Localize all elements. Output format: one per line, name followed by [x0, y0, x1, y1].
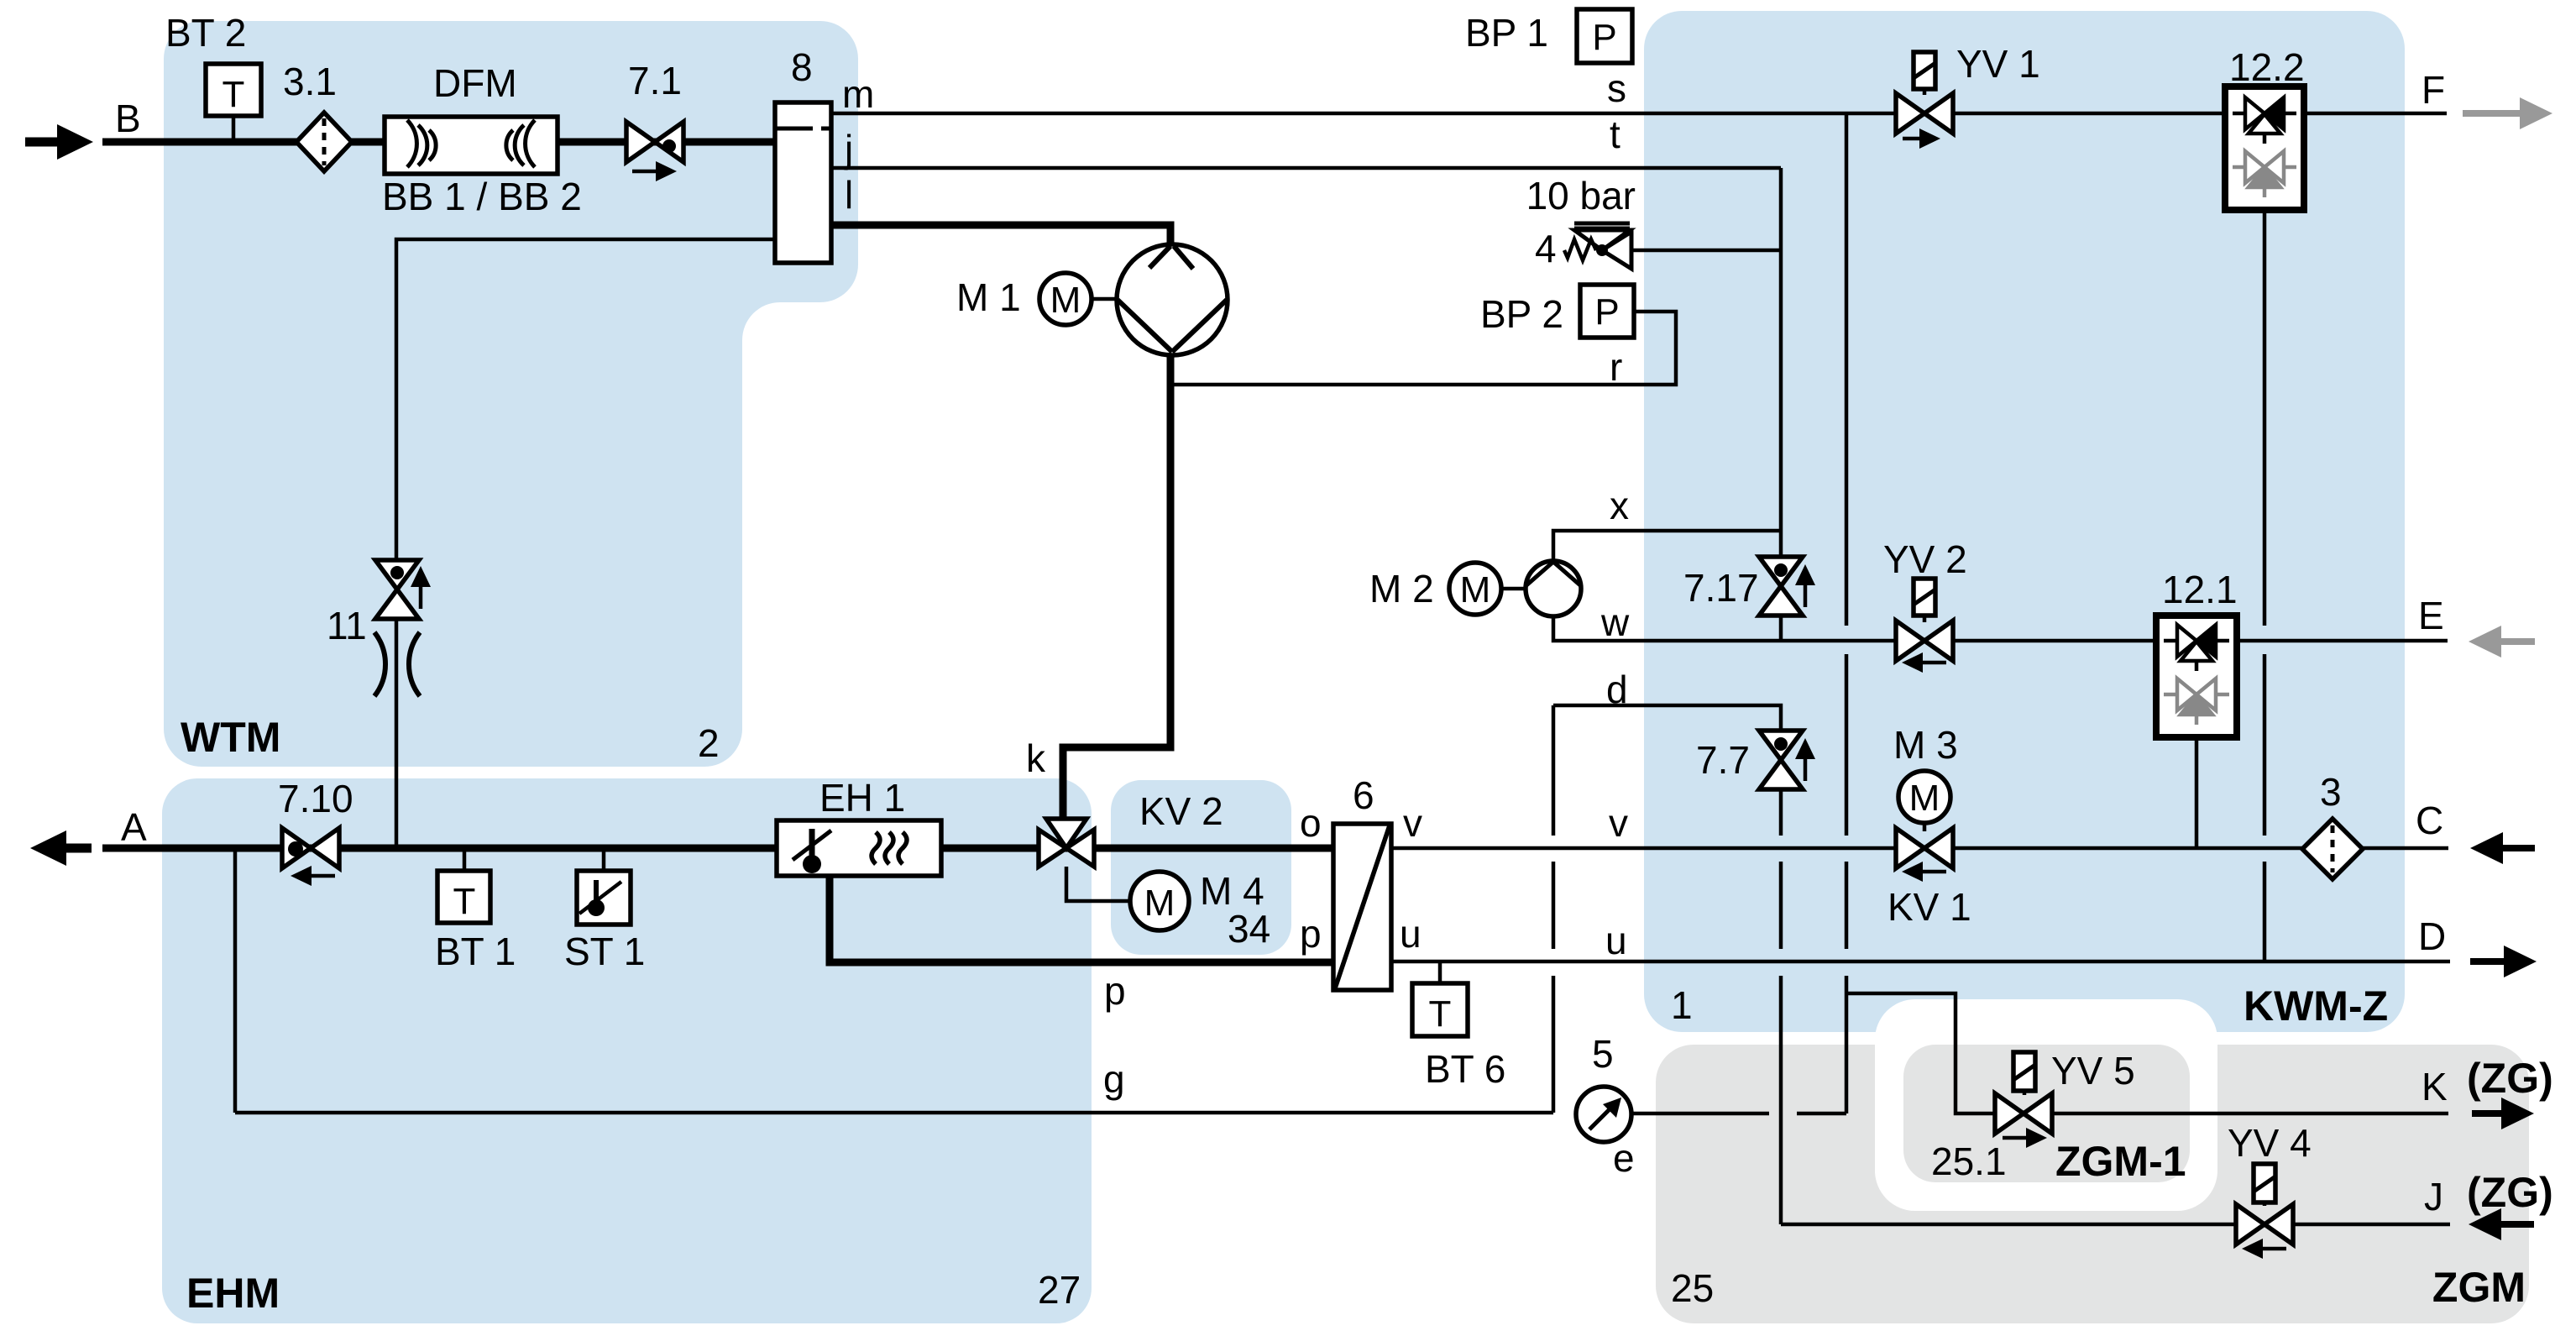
svg-text:p: p — [1104, 969, 1126, 1013]
svg-text:M: M — [1050, 280, 1081, 321]
svg-text:m: m — [842, 72, 874, 116]
svg-text:r: r — [1610, 345, 1622, 389]
svg-text:T: T — [453, 881, 476, 922]
svg-text:BT 1: BT 1 — [435, 930, 516, 973]
svg-text:8: 8 — [791, 45, 813, 89]
svg-text:27: 27 — [1038, 1268, 1081, 1312]
svg-text:4: 4 — [1535, 227, 1557, 270]
svg-text:25: 25 — [1671, 1266, 1714, 1310]
svg-text:C: C — [2416, 799, 2443, 842]
svg-text:EHM: EHM — [186, 1270, 280, 1317]
svg-text:7.7: 7.7 — [1696, 738, 1750, 782]
svg-text:e: e — [1613, 1136, 1635, 1180]
svg-text:7.1: 7.1 — [628, 59, 682, 102]
svg-text:DFM: DFM — [433, 61, 517, 105]
svg-text:ZGM-1: ZGM-1 — [2055, 1138, 2186, 1185]
svg-text:YV 2: YV 2 — [1883, 537, 1967, 581]
svg-text:K: K — [2422, 1065, 2448, 1108]
svg-text:J: J — [2424, 1175, 2443, 1218]
svg-text:BP 2: BP 2 — [1480, 292, 1563, 336]
svg-text:10 bar: 10 bar — [1526, 174, 1636, 217]
svg-text:25.1: 25.1 — [1931, 1140, 2007, 1183]
svg-text:(ZG): (ZG) — [2467, 1169, 2553, 1216]
svg-text:YV 1: YV 1 — [1956, 42, 2040, 86]
svg-text:12.1: 12.1 — [2162, 568, 2238, 611]
svg-text:(ZG): (ZG) — [2467, 1055, 2553, 1102]
svg-text:12.2: 12.2 — [2229, 45, 2305, 89]
svg-text:KV 2: KV 2 — [1139, 789, 1223, 833]
svg-text:3.1: 3.1 — [283, 60, 337, 103]
svg-text:k: k — [1026, 736, 1046, 780]
svg-text:M 2: M 2 — [1369, 567, 1434, 610]
svg-text:7.10: 7.10 — [278, 777, 353, 820]
svg-text:M 3: M 3 — [1893, 723, 1958, 767]
svg-text:1: 1 — [1671, 983, 1693, 1027]
svg-text:YV 5: YV 5 — [2051, 1049, 2135, 1092]
svg-text:EH 1: EH 1 — [819, 776, 905, 820]
svg-text:j: j — [843, 127, 853, 170]
svg-text:w: w — [1600, 600, 1630, 644]
svg-text:u: u — [1400, 912, 1422, 956]
svg-text:M 1: M 1 — [956, 275, 1021, 319]
svg-text:BT 2: BT 2 — [165, 11, 246, 55]
svg-text:s: s — [1607, 66, 1626, 110]
svg-text:BP 1: BP 1 — [1465, 11, 1548, 55]
svg-text:2: 2 — [698, 721, 720, 765]
svg-text:g: g — [1103, 1057, 1125, 1101]
svg-text:34: 34 — [1228, 907, 1270, 951]
svg-text:F: F — [2422, 68, 2445, 112]
svg-text:BT 6: BT 6 — [1425, 1047, 1505, 1091]
svg-text:T: T — [1429, 993, 1452, 1035]
svg-text:A: A — [121, 805, 147, 849]
svg-text:KWM-Z: KWM-Z — [2244, 982, 2388, 1030]
svg-text:YV 4: YV 4 — [2228, 1121, 2312, 1165]
svg-text:u: u — [1605, 919, 1627, 962]
svg-text:p: p — [1300, 912, 1322, 956]
svg-text:v: v — [1609, 801, 1628, 845]
svg-text:3: 3 — [2320, 770, 2342, 814]
svg-text:ST 1: ST 1 — [564, 930, 645, 973]
svg-text:5: 5 — [1592, 1032, 1614, 1076]
svg-text:6: 6 — [1353, 773, 1374, 817]
svg-text:ZGM: ZGM — [2432, 1264, 2526, 1311]
svg-text:d: d — [1606, 668, 1628, 711]
svg-text:KV 1: KV 1 — [1887, 885, 1971, 929]
svg-text:t: t — [1610, 113, 1620, 156]
svg-text:v: v — [1403, 801, 1422, 845]
svg-text:P: P — [1592, 17, 1616, 58]
svg-text:M: M — [1460, 569, 1491, 610]
svg-text:l: l — [845, 173, 853, 217]
svg-text:x: x — [1610, 484, 1629, 527]
svg-text:P: P — [1594, 291, 1619, 333]
svg-text:7.17: 7.17 — [1683, 566, 1759, 610]
svg-text:E: E — [2418, 594, 2444, 637]
svg-text:BB 1 / BB 2: BB 1 / BB 2 — [382, 175, 582, 218]
svg-text:M: M — [1144, 883, 1175, 924]
svg-text:T: T — [223, 74, 245, 115]
svg-text:M: M — [1909, 778, 1940, 819]
svg-text:o: o — [1300, 801, 1322, 845]
svg-text:11: 11 — [327, 604, 367, 647]
svg-text:WTM: WTM — [181, 714, 280, 761]
svg-text:D: D — [2418, 914, 2446, 958]
svg-text:B: B — [115, 97, 141, 140]
